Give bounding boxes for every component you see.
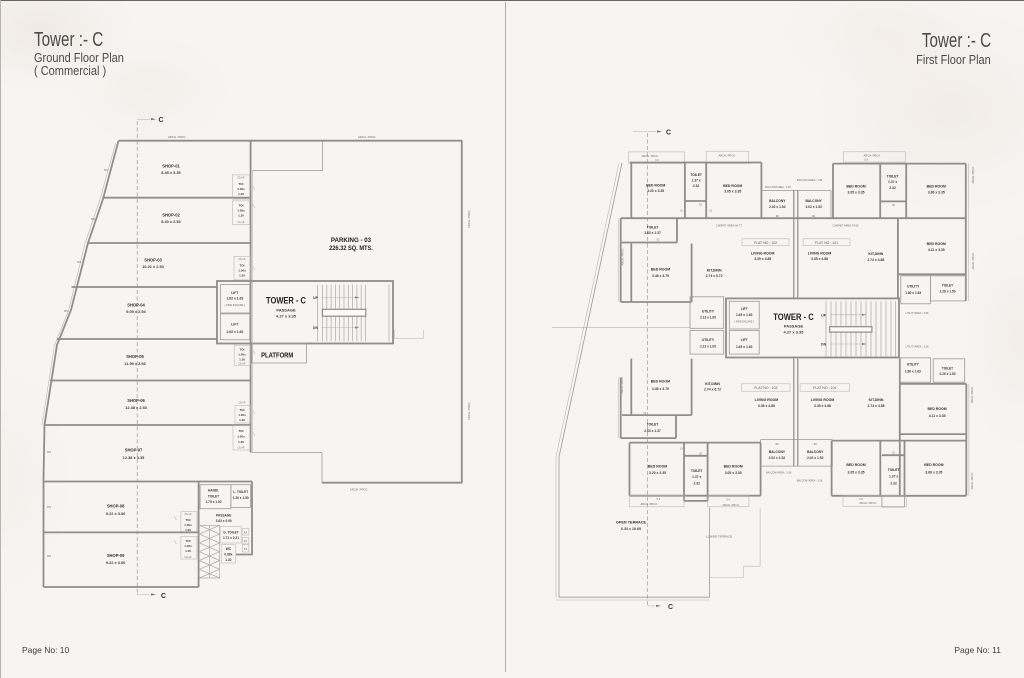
svg-text:ARCH. PROJ.: ARCH. PROJ. [641, 154, 658, 158]
svg-text:2.32: 2.32 [890, 482, 897, 486]
svg-text:RS: RS [47, 450, 51, 454]
svg-text:ARCH. PROJ.: ARCH. PROJ. [467, 210, 471, 229]
svg-text:1.20: 1.20 [185, 528, 191, 532]
svg-text:1.20: 1.20 [238, 440, 244, 444]
svg-text:BALCONY: BALCONY [806, 199, 823, 203]
svg-text:WC: WC [226, 547, 232, 551]
svg-text:U: U [244, 539, 246, 543]
svg-text:2.13 x 1.00: 2.13 x 1.00 [700, 344, 716, 348]
svg-text:ARCH. PROJ.: ARCH. PROJ. [970, 472, 974, 489]
svg-text:2.32: 2.32 [693, 481, 700, 485]
svg-text:LIVING ROOM: LIVING ROOM [808, 251, 832, 255]
svg-text:02: 02 [657, 239, 660, 242]
svg-text:CU+F: CU+F [238, 401, 245, 405]
svg-text:LIVING ROOM: LIVING ROOM [755, 398, 779, 402]
svg-text:2.02 x 1.52: 2.02 x 1.52 [805, 205, 822, 209]
svg-text:RS: RS [77, 260, 81, 264]
svg-text:UTILITYAREA : 3.58: UTILITYAREA : 3.58 [906, 345, 929, 348]
svg-text:LIFT: LIFT [741, 338, 748, 342]
svg-text:UTILITY: UTILITY [702, 309, 715, 313]
svg-text:9.22 x 3.00: 9.22 x 3.00 [106, 560, 125, 565]
svg-text:3.05 x 3.35: 3.05 x 3.35 [848, 471, 865, 475]
svg-text:1.00x: 1.00x [237, 209, 245, 213]
svg-text:2.74 x 6.72: 2.74 x 6.72 [704, 388, 721, 392]
svg-text:ARCH. PROJ.: ARCH. PROJ. [350, 488, 369, 492]
svg-text:1.32: 1.32 [225, 558, 231, 562]
svg-text:2.74 x 6.72: 2.74 x 6.72 [706, 274, 723, 278]
svg-text:LIVING ROOM: LIVING ROOM [811, 398, 835, 402]
svg-text:1.00x: 1.00x [184, 523, 192, 527]
svg-text:1.63 x 1.63: 1.63 x 1.63 [736, 345, 753, 349]
svg-text:U: U [244, 547, 246, 551]
svg-text:TOI: TOI [239, 204, 244, 208]
svg-text:2.13 x 1.00: 2.13 x 1.00 [700, 315, 716, 319]
svg-text:ARCH. PROJ.: ARCH. PROJ. [358, 135, 377, 139]
svg-text:CARPET AREA 79.96: CARPET AREA 79.96 [832, 224, 859, 228]
svg-text:90: 90 [775, 442, 779, 446]
svg-text:02: 02 [892, 452, 895, 455]
svg-text:0.9: 0.9 [864, 159, 868, 162]
svg-text:FLAT NO : 101: FLAT NO : 101 [815, 241, 838, 245]
svg-text:UTILITY: UTILITY [702, 338, 715, 342]
svg-text:226.32 SQ. MTS.: 226.32 SQ. MTS. [329, 245, 373, 252]
svg-text:TOI: TOI [240, 348, 245, 352]
svg-text:CU+F: CU+F [237, 220, 244, 224]
svg-text:3.20 x 3.35: 3.20 x 3.35 [647, 189, 664, 193]
svg-text:TOI: TOI [186, 518, 191, 522]
svg-text:RS: RS [91, 217, 95, 221]
svg-text:0.4: 0.4 [657, 498, 661, 501]
svg-text:TOILET: TOILET [888, 468, 900, 472]
svg-text:PLATFORM: PLATFORM [261, 353, 293, 360]
svg-text:2.02 x 1.52: 2.02 x 1.52 [769, 205, 786, 209]
svg-text:ARCH. PROJ.: ARCH. PROJ. [971, 166, 975, 183]
svg-text:ARCH. PROJ.: ARCH. PROJ. [970, 386, 974, 403]
svg-text:1.00x: 1.00x [237, 435, 245, 439]
svg-text:1.63 x 1.63: 1.63 x 1.63 [226, 330, 243, 334]
svg-text:SHOP-02: SHOP-02 [162, 213, 180, 218]
svg-text:TOI: TOI [240, 264, 245, 268]
svg-text:TOILET: TOILET [690, 173, 702, 177]
svg-text:BALCONYAREA : 3.38: BALCONYAREA : 3.38 [765, 186, 791, 189]
svg-text:RS: RS [64, 309, 68, 313]
svg-text:BED ROOM: BED ROOM [648, 464, 667, 468]
svg-text:TOILET: TOILET [942, 366, 953, 370]
svg-text:0.88x: 0.88x [224, 553, 232, 557]
svg-text:1.37 x: 1.37 x [889, 475, 898, 479]
svg-text:01: 01 [680, 448, 683, 451]
svg-text:1.20: 1.20 [238, 214, 244, 218]
svg-text:BALCONY: BALCONY [807, 450, 824, 454]
svg-text:CU+F: CU+F [237, 176, 244, 180]
svg-text:90: 90 [814, 442, 818, 446]
svg-text:ARCH. PROJ.: ARCH. PROJ. [640, 502, 657, 506]
svg-text:3.35 x 4.88: 3.35 x 4.88 [811, 257, 828, 261]
svg-text:BALCONYAREA : 3.38: BALCONYAREA : 3.38 [766, 472, 792, 475]
svg-text:12.38 x 2.53: 12.38 x 2.53 [125, 405, 147, 410]
svg-text:3.46 x 3.79: 3.46 x 3.79 [652, 274, 669, 278]
svg-text:SHOP-09: SHOP-09 [107, 553, 125, 558]
svg-text:TOI: TOI [186, 539, 191, 543]
svg-text:LIVING ROOM: LIVING ROOM [751, 251, 775, 255]
svg-text:C: C [666, 130, 671, 137]
svg-text:2.63 x 1.37: 2.63 x 1.37 [644, 429, 661, 433]
svg-text:DN: DN [821, 343, 827, 347]
svg-text:1.20: 1.20 [239, 418, 245, 422]
svg-text:1.20: 1.20 [239, 274, 245, 278]
svg-text:TOILET: TOILET [647, 225, 659, 229]
svg-text:ARCH. PROJ.: ARCH. PROJ. [971, 252, 975, 269]
svg-text:KIT,DINN: KIT,DINN [707, 268, 722, 272]
svg-text:TOI: TOI [240, 408, 245, 412]
svg-text:BALCONY: BALCONY [769, 450, 786, 454]
svg-text:3.35 x 4.88: 3.35 x 4.88 [814, 404, 831, 408]
svg-text:3.66 x 3.35: 3.66 x 3.35 [925, 471, 942, 475]
svg-text:FLAT NO : 102: FLAT NO : 102 [754, 241, 777, 245]
svg-text:3.35 x 4.88: 3.35 x 4.88 [758, 404, 775, 408]
svg-text:PASSAGE: PASSAGE [276, 308, 296, 313]
svg-text:2.32: 2.32 [889, 186, 896, 190]
svg-text:3.35 x 4.88: 3.35 x 4.88 [754, 257, 771, 261]
svg-text:TOILET: TOILET [691, 469, 703, 473]
svg-text:ARCH. PROJ.: ARCH. PROJ. [863, 153, 880, 157]
svg-text:CU+F: CU+F [238, 257, 245, 261]
svg-text:BED ROOM: BED ROOM [927, 185, 946, 189]
svg-text:CARPET AREA 64.77: CARPET AREA 64.77 [716, 224, 743, 228]
svg-text:BED ROOM: BED ROOM [846, 185, 865, 189]
svg-text:8.40 x 2.53: 8.40 x 2.53 [161, 219, 181, 224]
svg-text:8.45 x 3.35: 8.45 x 3.35 [161, 170, 181, 175]
svg-text:( FIRE ESCAPE ): ( FIRE ESCAPE ) [225, 303, 245, 307]
svg-text:SHOP-01: SHOP-01 [162, 164, 180, 169]
svg-text:ARCH. PROJ.: ARCH. PROJ. [467, 402, 471, 421]
svg-text:90: 90 [776, 214, 780, 218]
svg-text:HANDI.: HANDI. [208, 489, 219, 493]
svg-text:LIFT: LIFT [741, 307, 748, 311]
svg-text:KIT,DINN: KIT,DINN [868, 252, 883, 256]
svg-text:LOWER TERRACE: LOWER TERRACE [706, 535, 732, 539]
svg-text:ARCH. PROJ.: ARCH. PROJ. [620, 248, 624, 265]
svg-text:1.75 x 1.00: 1.75 x 1.00 [206, 500, 222, 504]
svg-text:1.71 x 2.21: 1.71 x 2.21 [223, 536, 239, 540]
svg-text:TOILET: TOILET [647, 423, 659, 427]
svg-text:0.6: 0.6 [655, 159, 659, 162]
svg-text:ARCH. PROJ.: ARCH. PROJ. [620, 376, 624, 393]
svg-text:1.00x: 1.00x [184, 544, 192, 548]
svg-text:4.27 x 3.35: 4.27 x 3.35 [783, 330, 804, 335]
svg-text:02: 02 [699, 204, 702, 207]
svg-text:3.05 x 3.35: 3.05 x 3.35 [724, 190, 741, 194]
svg-text:2.02 x 1.52: 2.02 x 1.52 [807, 456, 824, 460]
svg-text:RS: RS [47, 505, 51, 509]
svg-text:UTILITY: UTILITY [907, 363, 920, 367]
svg-text:3.20 x 3.35: 3.20 x 3.35 [649, 471, 666, 475]
svg-text:L. TOILET: L. TOILET [233, 490, 248, 494]
svg-text:BED ROOM: BED ROOM [924, 463, 943, 467]
svg-text:2.74 x 4.88: 2.74 x 4.88 [867, 258, 884, 262]
svg-text:BALCONYAREA : 3.38: BALCONYAREA : 3.38 [797, 480, 823, 483]
svg-text:ARCH. PROJ.: ARCH. PROJ. [168, 135, 187, 139]
svg-text:1.20: 1.20 [239, 358, 245, 362]
svg-text:90: 90 [812, 214, 816, 218]
svg-text:BALCONYAREA : 3.38: BALCONYAREA : 3.38 [797, 179, 823, 182]
svg-text:4.11 x 3.35: 4.11 x 3.35 [928, 248, 945, 252]
svg-text:1.37 x: 1.37 x [692, 475, 701, 479]
svg-text:1.83 x 1.63: 1.83 x 1.63 [226, 297, 243, 301]
svg-text:BED ROOM: BED ROOM [723, 184, 742, 188]
svg-text:2.26 x 1.50: 2.26 x 1.50 [940, 372, 956, 376]
svg-text:SHOP-05: SHOP-05 [126, 354, 144, 359]
svg-text:KIT,DINN: KIT,DINN [869, 398, 884, 402]
svg-text:0.9: 0.9 [859, 498, 863, 501]
svg-text:1.80 x 1.63: 1.80 x 1.63 [905, 291, 921, 295]
svg-text:LIFT: LIFT [231, 291, 239, 295]
svg-text:RS: RS [104, 168, 108, 172]
svg-text:3.46 x 3.79: 3.46 x 3.79 [652, 387, 669, 391]
svg-text:CU+F: CU+F [184, 555, 191, 559]
svg-text:BED ROOM: BED ROOM [927, 242, 946, 246]
svg-text:9.05 x 2.94: 9.05 x 2.94 [126, 309, 146, 314]
svg-text:1.20: 1.20 [185, 549, 191, 553]
svg-text:1.80 x 1.63: 1.80 x 1.63 [905, 370, 921, 374]
svg-text:SHOP-08: SHOP-08 [107, 504, 125, 509]
svg-text:9.22 x 3.00: 9.22 x 3.00 [106, 511, 125, 516]
svg-text:01: 01 [709, 210, 712, 213]
svg-text:2.32: 2.32 [693, 184, 700, 188]
svg-text:RS: RS [47, 554, 51, 558]
svg-text:2.26 x 1.50: 2.26 x 1.50 [940, 289, 956, 293]
svg-text:SHOP-03: SHOP-03 [144, 258, 162, 263]
svg-text:OPEN TERRACE: OPEN TERRACE [616, 521, 647, 525]
svg-text:BED ROOM: BED ROOM [646, 184, 665, 188]
svg-text:TOI: TOI [239, 429, 244, 433]
svg-text:11.95 x 2.53: 11.95 x 2.53 [124, 361, 146, 366]
svg-text:BALCONY: BALCONY [769, 199, 786, 203]
svg-text:ARCH. PROJ.: ARCH. PROJ. [722, 503, 739, 507]
svg-text:1.00x: 1.00x [238, 353, 246, 357]
svg-text:C: C [159, 117, 164, 124]
svg-text:ARCH. PROJ.: ARCH. PROJ. [718, 154, 735, 158]
svg-text:4.11 x 3.35: 4.11 x 3.35 [929, 414, 946, 418]
svg-text:1.37 x: 1.37 x [692, 179, 701, 183]
svg-text:DN: DN [313, 326, 319, 330]
svg-text:PASSAGE: PASSAGE [784, 324, 804, 329]
svg-text:TOWER - C: TOWER - C [773, 312, 814, 322]
svg-text:U: U [244, 530, 246, 534]
svg-text:C: C [161, 593, 166, 600]
svg-text:UP: UP [821, 313, 827, 317]
svg-text:3.83 x 0.90: 3.83 x 0.90 [216, 519, 232, 523]
svg-text:PARKING - 03: PARKING - 03 [331, 237, 372, 244]
svg-text:2.74 x 4.88: 2.74 x 4.88 [868, 404, 885, 408]
svg-text:SHOP-07: SHOP-07 [125, 448, 143, 453]
svg-text:PASSAGE: PASSAGE [216, 514, 231, 518]
svg-text:TOWER - C: TOWER - C [266, 295, 307, 305]
svg-text:FLAT NO : 103: FLAT NO : 103 [754, 386, 777, 390]
svg-text:ARCH. PROJ.: ARCH. PROJ. [859, 501, 876, 505]
svg-text:G. TOILET: G. TOILET [223, 531, 239, 535]
svg-text:BED ROOM: BED ROOM [651, 268, 670, 272]
svg-text:1.37 x: 1.37 x [888, 180, 897, 184]
svg-text:BED ROOM: BED ROOM [651, 379, 670, 383]
svg-text:SHOP-04: SHOP-04 [127, 303, 145, 308]
svg-text:3.05 x 3.35: 3.05 x 3.35 [725, 471, 742, 475]
svg-text:CU+F: CU+F [238, 362, 245, 366]
svg-text:C: C [668, 604, 673, 611]
svg-text:KIT,DINN: KIT,DINN [705, 382, 720, 386]
svg-text:CU+F: CU+F [184, 512, 191, 516]
svg-text:UTILITY: UTILITY [907, 284, 920, 288]
svg-text:0.4: 0.4 [726, 499, 730, 502]
svg-text:1.63 x 1.63: 1.63 x 1.63 [736, 313, 753, 317]
svg-text:6.33 x 10.69: 6.33 x 10.69 [621, 527, 641, 531]
svg-text:2.63 x 1.37: 2.63 x 1.37 [644, 231, 661, 235]
svg-text:BED ROOM: BED ROOM [846, 463, 865, 467]
svg-text:1.00x: 1.00x [238, 269, 246, 273]
svg-text:UP: UP [313, 296, 319, 300]
svg-text:4.27 x 3.35: 4.27 x 3.35 [276, 314, 297, 319]
svg-text:BED ROOM: BED ROOM [724, 464, 743, 468]
svg-text:FLAT NO : 104: FLAT NO : 104 [813, 386, 836, 390]
svg-text:02: 02 [892, 204, 895, 207]
svg-text:1.00x: 1.00x [237, 187, 245, 191]
svg-text:UTILITYAREA : 3.58: UTILITYAREA : 3.58 [906, 312, 929, 315]
svg-text:TOILET: TOILET [887, 175, 899, 179]
svg-text:16.21 x 2.53: 16.21 x 2.53 [142, 264, 164, 269]
svg-text:3.66 x 3.35: 3.66 x 3.35 [928, 191, 945, 195]
svg-text:1.20 x 1.50: 1.20 x 1.50 [233, 496, 249, 500]
svg-text:SHOP-06: SHOP-06 [127, 398, 145, 403]
svg-text:TOILET: TOILET [208, 494, 219, 498]
svg-text:TOILET: TOILET [942, 283, 953, 287]
svg-text:TOI: TOI [239, 182, 244, 186]
svg-text:12.38 x 3.35: 12.38 x 3.35 [123, 455, 145, 460]
svg-text:3.05 x 3.35: 3.05 x 3.35 [848, 191, 865, 195]
svg-text:LIFT: LIFT [231, 323, 239, 327]
svg-text:CU+F: CU+F [237, 446, 244, 450]
svg-text:1.00x: 1.00x [238, 413, 246, 417]
svg-text:1.20: 1.20 [238, 192, 244, 196]
svg-text:01: 01 [680, 210, 683, 213]
svg-text:2.02 x 1.52: 2.02 x 1.52 [769, 456, 786, 460]
svg-text:( FIRE ESCAPE ): ( FIRE ESCAPE ) [734, 321, 754, 324]
svg-text:BED ROOM: BED ROOM [927, 407, 946, 411]
